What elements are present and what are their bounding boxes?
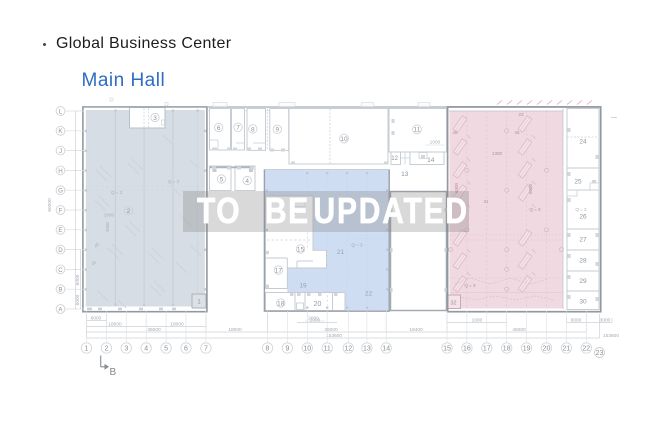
svg-text:Q = 3: Q = 3 xyxy=(111,190,123,195)
svg-text:2000: 2000 xyxy=(310,318,321,324)
svg-text:8: 8 xyxy=(251,126,255,133)
svg-text:19: 19 xyxy=(299,283,307,290)
svg-text:3: 3 xyxy=(153,115,157,122)
svg-text:D: D xyxy=(58,247,63,254)
svg-text:20: 20 xyxy=(543,346,551,353)
svg-text:21: 21 xyxy=(563,346,571,353)
svg-text:7: 7 xyxy=(204,346,208,353)
svg-text:1: 1 xyxy=(85,346,89,353)
svg-text:B: B xyxy=(110,367,117,378)
svg-text:24: 24 xyxy=(579,139,587,146)
svg-text:3: 3 xyxy=(124,346,128,353)
svg-text:18: 18 xyxy=(277,300,285,307)
svg-text:45000: 45000 xyxy=(512,327,526,333)
svg-text:G: G xyxy=(58,188,63,195)
svg-text:18000: 18000 xyxy=(108,322,122,328)
svg-text:18000: 18000 xyxy=(228,327,242,333)
svg-text:3000: 3000 xyxy=(105,221,110,232)
svg-text:153600: 153600 xyxy=(603,333,619,339)
svg-text:30: 30 xyxy=(579,299,587,306)
svg-text:17: 17 xyxy=(275,267,283,274)
svg-text:6000: 6000 xyxy=(75,294,81,305)
svg-text:Q = 3: Q = 3 xyxy=(464,283,476,288)
svg-text:13: 13 xyxy=(363,346,371,353)
svg-text:Q = 3: Q = 3 xyxy=(168,179,180,184)
svg-text:B: B xyxy=(58,287,62,294)
svg-text:29: 29 xyxy=(579,278,587,285)
svg-text:26: 26 xyxy=(579,214,587,221)
svg-text:6000: 6000 xyxy=(91,316,102,322)
svg-text:18400: 18400 xyxy=(409,327,423,333)
svg-text:L: L xyxy=(59,108,63,115)
svg-text:Q = 3: Q = 3 xyxy=(575,207,587,212)
svg-text:16: 16 xyxy=(463,346,471,353)
svg-text:18: 18 xyxy=(503,346,511,353)
svg-text:1300: 1300 xyxy=(492,151,503,156)
svg-text:45: 45 xyxy=(452,130,458,135)
svg-text:3000: 3000 xyxy=(600,318,611,324)
svg-text:22: 22 xyxy=(582,346,590,353)
svg-text:6: 6 xyxy=(217,125,221,132)
svg-text:25: 25 xyxy=(574,179,582,186)
svg-text:27: 27 xyxy=(579,237,587,244)
svg-text:5: 5 xyxy=(164,346,168,353)
svg-text:1000: 1000 xyxy=(430,140,441,146)
svg-text:13: 13 xyxy=(401,171,409,178)
svg-text:2000: 2000 xyxy=(104,213,115,218)
svg-text:22: 22 xyxy=(365,291,373,298)
svg-text:23: 23 xyxy=(518,112,524,117)
svg-text:6: 6 xyxy=(184,346,188,353)
svg-text:153600: 153600 xyxy=(326,333,342,339)
svg-text:E: E xyxy=(58,227,62,234)
svg-text:Q = 3: Q = 3 xyxy=(529,207,541,212)
svg-text:18000: 18000 xyxy=(170,322,184,328)
svg-text:20: 20 xyxy=(314,301,322,308)
svg-text:9: 9 xyxy=(285,346,289,353)
svg-text:32: 32 xyxy=(450,301,456,307)
svg-text:5: 5 xyxy=(220,176,224,183)
svg-text:1000: 1000 xyxy=(472,318,483,324)
svg-text:Q = 3: Q = 3 xyxy=(351,242,363,247)
svg-text:31: 31 xyxy=(483,199,489,204)
svg-text:15: 15 xyxy=(297,246,305,253)
svg-text:19: 19 xyxy=(523,346,531,353)
svg-text:28: 28 xyxy=(579,258,587,265)
svg-text:2: 2 xyxy=(104,346,108,353)
svg-text:4: 4 xyxy=(245,178,249,185)
svg-text:17: 17 xyxy=(483,346,491,353)
svg-text:H: H xyxy=(58,168,62,175)
svg-text:6000: 6000 xyxy=(75,274,81,285)
svg-text:4: 4 xyxy=(144,346,148,353)
svg-text:F: F xyxy=(59,207,63,214)
svg-text:10: 10 xyxy=(340,136,348,143)
svg-text:10: 10 xyxy=(303,346,311,353)
svg-text:15: 15 xyxy=(443,346,451,353)
svg-text:14: 14 xyxy=(382,346,390,353)
svg-text:21: 21 xyxy=(337,249,345,256)
svg-text:12: 12 xyxy=(391,156,398,162)
svg-text:45: 45 xyxy=(514,130,520,135)
svg-text:J: J xyxy=(59,148,62,155)
svg-text:11: 11 xyxy=(324,346,331,353)
svg-text:2: 2 xyxy=(127,208,131,215)
svg-text:12: 12 xyxy=(344,346,352,353)
svg-text:11: 11 xyxy=(414,127,421,134)
svg-text:9: 9 xyxy=(275,127,279,134)
svg-text:36000: 36000 xyxy=(147,327,161,333)
svg-text:C: C xyxy=(58,267,63,274)
svg-text:6000: 6000 xyxy=(571,318,582,324)
svg-text:7: 7 xyxy=(236,125,240,132)
svg-text:36000: 36000 xyxy=(324,327,338,333)
svg-text:6000: 6000 xyxy=(528,183,533,194)
svg-text:60000: 60000 xyxy=(47,198,53,212)
svg-text:23: 23 xyxy=(596,350,604,357)
svg-text:14: 14 xyxy=(427,157,435,164)
svg-text:8: 8 xyxy=(266,346,270,353)
